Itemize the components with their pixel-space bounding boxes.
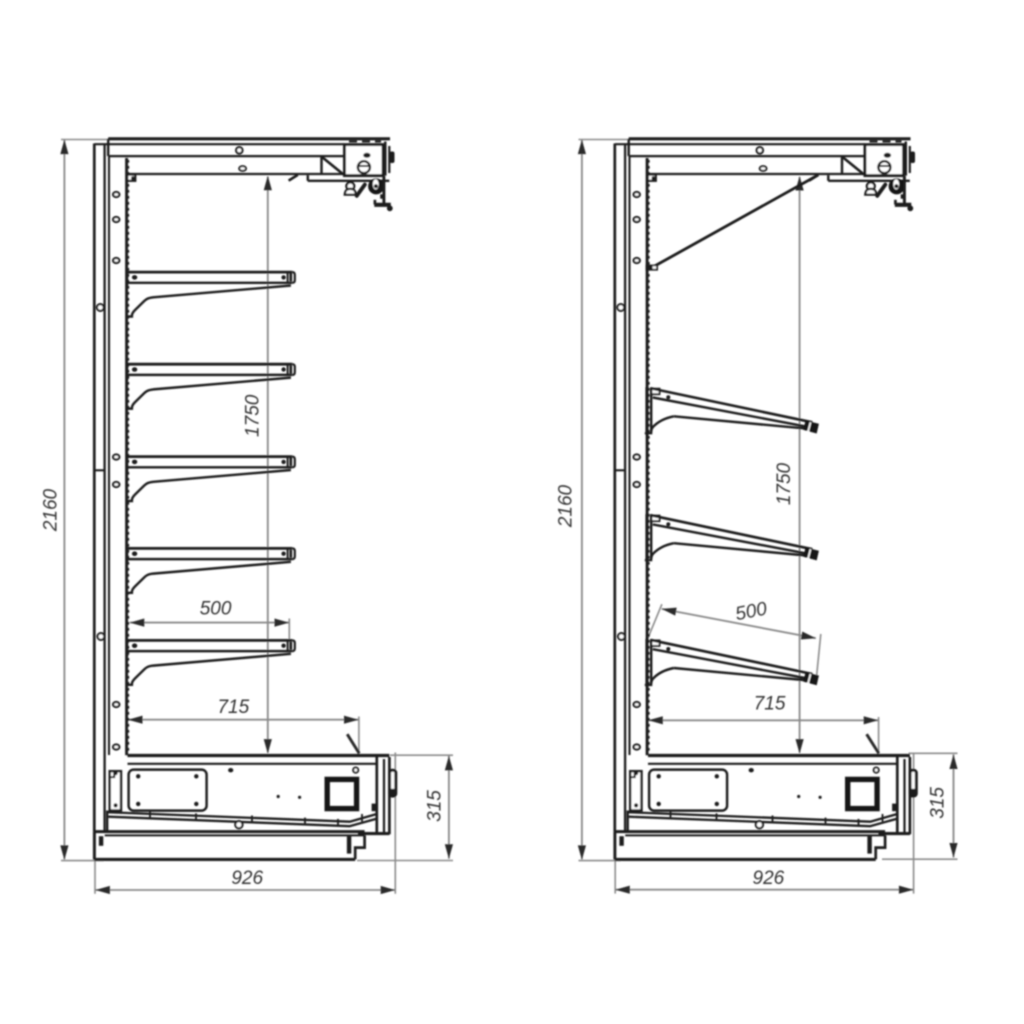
- svg-text:2160: 2160: [556, 484, 577, 528]
- svg-text:1750: 1750: [242, 394, 263, 437]
- svg-text:715: 715: [754, 693, 786, 714]
- svg-text:315: 315: [425, 790, 446, 822]
- svg-text:500: 500: [200, 599, 232, 620]
- svg-text:926: 926: [753, 868, 785, 889]
- svg-text:926: 926: [231, 868, 263, 889]
- svg-text:315: 315: [928, 787, 949, 819]
- svg-text:1750: 1750: [774, 462, 795, 505]
- svg-text:2160: 2160: [40, 488, 61, 532]
- svg-text:715: 715: [217, 697, 249, 718]
